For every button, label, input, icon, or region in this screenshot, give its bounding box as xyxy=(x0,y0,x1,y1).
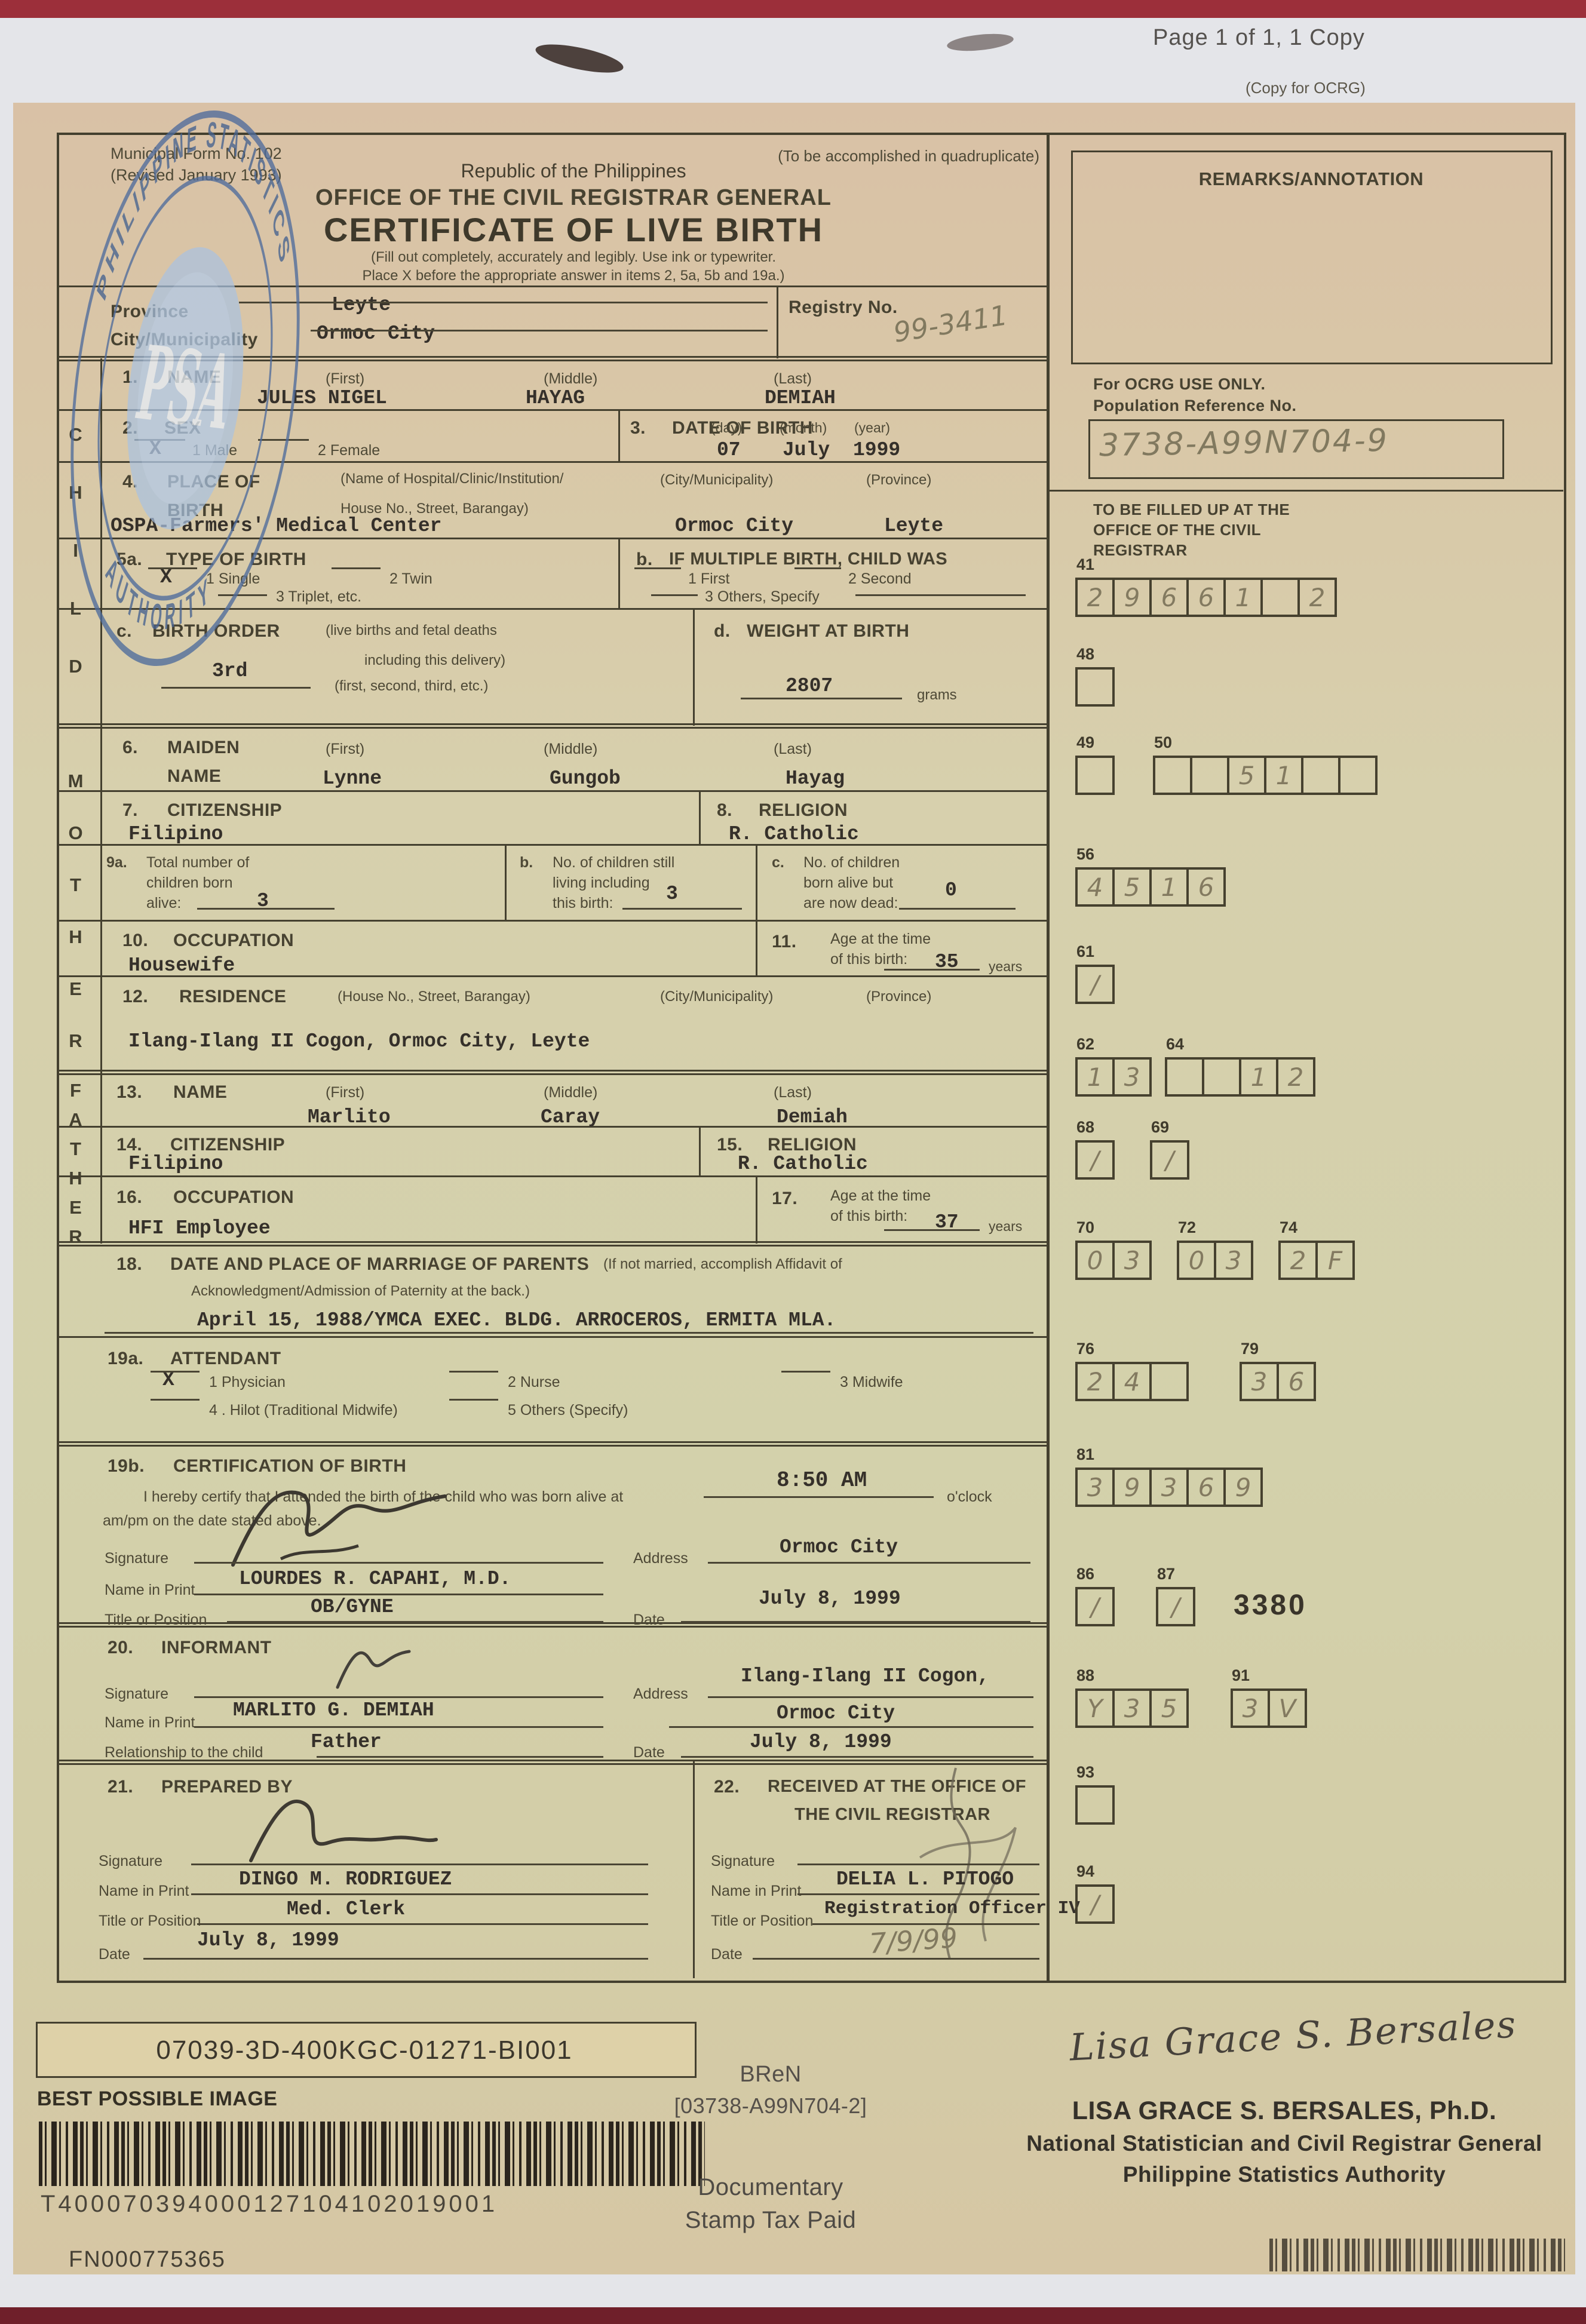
dst-line2: Stamp Tax Paid xyxy=(651,2207,890,2234)
ocrg-field-88: 88 Y35 xyxy=(1075,1666,1186,1728)
ocrg-field-72: 72 03 xyxy=(1177,1218,1251,1280)
ocrg-use-only: For OCRG USE ONLY. xyxy=(1093,375,1266,394)
stamp-ring-bottom-text: AUTHORITY xyxy=(96,547,219,644)
bren-number: [03738-A99N704-2] xyxy=(651,2093,890,2119)
ocrg-field-50: 50 51 xyxy=(1153,733,1375,795)
child-middle-name: HAYAG xyxy=(526,387,585,409)
received-title: Registration Officer IV xyxy=(824,1898,1080,1919)
bren-label: BReN xyxy=(687,2062,854,2087)
received-name: DELIA L. PITOGO xyxy=(836,1868,1014,1890)
scanned-birth-certificate: Page 1 of 1, 1 Copy Municipal Form No. 1… xyxy=(0,0,1586,2324)
section-father: FATHER xyxy=(65,1080,86,1255)
dob-year: 1999 xyxy=(853,439,900,461)
ocrg-field-79: 79 36 xyxy=(1240,1340,1314,1401)
attendant-label: ATTENDANT xyxy=(170,1349,281,1369)
population-reference-label: Population Reference No. xyxy=(1093,397,1297,415)
instructions-line2: Place X before the appropriate answer in… xyxy=(275,268,872,284)
informant-name: MARLITO G. DEMIAH xyxy=(233,1699,434,1721)
dob-day: 07 xyxy=(717,439,741,461)
ocrg-field-49: 49 xyxy=(1075,733,1112,795)
page-count-label: Page 1 of 1, 1 Copy xyxy=(1153,25,1535,51)
father-religion: R. Catholic xyxy=(738,1153,868,1175)
ocrg-field-93: 93 xyxy=(1075,1763,1112,1825)
ocrg-field-56: 56 4516 xyxy=(1075,845,1223,907)
population-reference-value: 3738-A99N704-9 xyxy=(1099,423,1389,463)
best-possible-image: BEST POSSIBLE IMAGE xyxy=(37,2087,277,2111)
document-barcode xyxy=(39,2122,705,2186)
copy-for-ocrg: (Copy for OCRG) xyxy=(1246,79,1366,97)
ocrg-field-81: 81 39369 xyxy=(1075,1445,1260,1507)
prepared-date: July 8, 1999 xyxy=(197,1929,339,1951)
ocrg-field-94: 94 / xyxy=(1075,1862,1112,1924)
father-citizenship: Filipino xyxy=(128,1153,223,1175)
dst-line1: Documentary xyxy=(651,2174,890,2201)
ocrg-field-62: 62 13 xyxy=(1075,1035,1149,1097)
mother-residence: Ilang-Ilang II Cogon, Ormoc City, Leyte xyxy=(128,1030,590,1052)
prepared-name: DINGO M. RODRIGUEZ xyxy=(239,1868,452,1890)
prepared-signature xyxy=(233,1786,442,1869)
ocrg-field-48: 48 xyxy=(1075,645,1112,707)
footer-small-barcode xyxy=(1269,2239,1565,2271)
photo-border-bottom xyxy=(0,2307,1586,2324)
republic-line: Republic of the Philippines xyxy=(275,160,872,182)
section-mother: MOTHER xyxy=(65,770,86,1082)
informant-date: July 8, 1999 xyxy=(750,1731,892,1753)
ocrg-field-91: 91 3V xyxy=(1231,1666,1305,1728)
father-last-name: Demiah xyxy=(777,1106,848,1128)
certification-label: CERTIFICATION OF BIRTH xyxy=(173,1456,406,1476)
birth-city: Ormoc City xyxy=(675,515,793,537)
mother-last-name: Hayag xyxy=(786,767,845,790)
father-middle-name: Caray xyxy=(541,1106,600,1128)
certifier-title: OB/GYNE xyxy=(311,1596,394,1618)
mother-middle-name: Gungob xyxy=(550,767,621,790)
informant-address-2: Ormoc City xyxy=(777,1702,895,1724)
image-code: 07039-3D-400KGC-01271-BI001 xyxy=(36,2036,693,2065)
informant-signature xyxy=(326,1640,421,1693)
mother-citizenship: Filipino xyxy=(128,823,223,845)
ocrg-field-68: 68 / xyxy=(1075,1118,1112,1180)
weight-label: WEIGHT AT BIRTH xyxy=(747,621,909,641)
informant-address-1: Ilang-Ilang II Cogon, xyxy=(741,1665,989,1687)
remarks-title: REMARKS/ANNOTATION xyxy=(1075,168,1547,190)
instructions-line1: (Fill out completely, accurately and leg… xyxy=(275,249,872,266)
mother-religion: R. Catholic xyxy=(729,823,859,845)
ocrg-field-41: 41 296612 xyxy=(1075,555,1335,617)
psa-stamp: PHILIPPINE STATISTICS AUTHORITY PSA xyxy=(24,93,346,684)
ocrg-field-87: 87 / xyxy=(1156,1565,1193,1626)
mother-occupation: Housewife xyxy=(128,954,235,977)
father-first-name: Marlito xyxy=(308,1106,391,1128)
certification-date: July 8, 1999 xyxy=(759,1588,901,1610)
signer-name: LISA GRACE S. BERSALES, Ph.D. xyxy=(992,2096,1577,2126)
father-occupation: HFI Employee xyxy=(128,1217,271,1239)
signer-title-2: Philippine Statistics Authority xyxy=(992,2162,1577,2187)
ocrg-field-70: 70 03 xyxy=(1075,1218,1149,1280)
certifier-name: LOURDES R. CAPAHI, M.D. xyxy=(239,1568,511,1590)
children-now-dead: 0 xyxy=(945,879,957,901)
ocrg-field-69: 69 / xyxy=(1150,1118,1187,1180)
ocrg-field-76: 76 24 xyxy=(1075,1340,1186,1401)
children-still-living: 3 xyxy=(666,883,678,905)
birth-province: Leyte xyxy=(884,515,943,537)
prepared-title: Med. Clerk xyxy=(287,1898,405,1920)
weight-value: 2807 xyxy=(786,675,833,697)
multiple-birth-label: IF MULTIPLE BIRTH, CHILD WAS xyxy=(669,549,947,569)
received-date: 7/9/99 xyxy=(868,1921,958,1960)
fn-number: FN000775365 xyxy=(69,2247,226,2273)
birth-time: 8:50 AM xyxy=(777,1468,867,1493)
mother-first-name: Lynne xyxy=(323,767,382,790)
barcode-number: T400070394000127104102019001 xyxy=(41,2191,498,2218)
marriage-value: April 15, 1988/YMCA EXEC. BLDG. ARROCERO… xyxy=(197,1309,836,1331)
ocrg-field-74: 74 2F xyxy=(1278,1218,1352,1280)
child-last-name: DEMIAH xyxy=(765,387,836,409)
stamp-psa-text: PSA xyxy=(131,323,238,453)
dob-month: July xyxy=(783,439,830,461)
registry-no-label: Registry No. xyxy=(789,297,898,318)
signer-title-1: National Statistician and Civil Registra… xyxy=(992,2131,1577,2156)
ocrg-printed-code: 3380 xyxy=(1234,1589,1307,1622)
informant-label: INFORMANT xyxy=(161,1638,271,1658)
ocrg-field-64: 64 12 xyxy=(1165,1035,1313,1097)
certifier-address: Ormoc City xyxy=(780,1536,898,1558)
svg-text:AUTHORITY: AUTHORITY xyxy=(96,547,219,644)
ocrg-field-61: 61 / xyxy=(1075,943,1112,1004)
ocrg-field-86: 86 / xyxy=(1075,1565,1112,1626)
marriage-label: DATE AND PLACE OF MARRIAGE OF PARENTS xyxy=(170,1254,589,1275)
informant-relationship: Father xyxy=(311,1731,382,1753)
photo-border-top xyxy=(0,0,1586,18)
